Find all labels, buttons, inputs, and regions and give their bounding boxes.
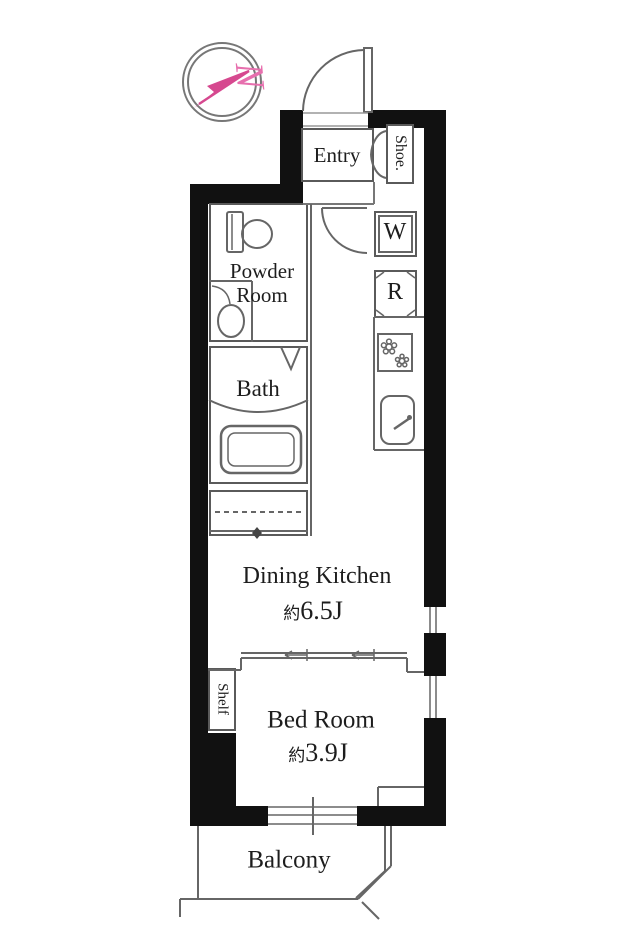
stove-icon — [378, 334, 412, 371]
balcony-label: Balcony — [247, 847, 330, 876]
window-icon-bedroom — [424, 672, 446, 722]
bath-label: Bath — [236, 376, 279, 402]
refrigerator-label: R — [387, 279, 403, 307]
bedroom-notch — [378, 787, 424, 806]
north-arrow-icon: N — [183, 43, 274, 121]
entry-label: Entry — [314, 143, 361, 167]
north-letter: N — [227, 59, 274, 93]
shoe-closet-door-icon — [371, 131, 386, 178]
bathtub-icon — [209, 347, 308, 473]
entry-door-icon — [303, 48, 374, 204]
dining-kitchen-area-prefix: 約 — [283, 604, 300, 623]
shelf-label: Shelf — [213, 683, 230, 715]
bed-room-area-prefix: 約 — [288, 746, 305, 765]
shoe-closet-label: Shoe. — [391, 135, 409, 171]
toilet-icon — [227, 212, 272, 252]
bed-room-label: Bed Room — [267, 707, 375, 736]
washer-label: W — [384, 219, 407, 247]
dining-kitchen-area: 約6.5J — [283, 596, 343, 626]
bed-room-area-value: 3.9J — [305, 738, 348, 767]
hall-door-icon — [322, 208, 367, 253]
powder-room-label: Powder Room — [214, 259, 310, 307]
sliding-partition — [208, 649, 424, 672]
bed-room-area: 約3.9J — [288, 738, 348, 768]
window-icon-dk — [424, 603, 446, 637]
floor-plan: N — [0, 0, 638, 950]
closet-lines — [209, 512, 308, 539]
folding-door-icon — [281, 347, 300, 369]
window-icon-balcony-door — [255, 797, 370, 835]
dining-kitchen-area-value: 6.5J — [300, 596, 343, 625]
sliding-door-arrows — [285, 649, 374, 661]
dining-kitchen-label: Dining Kitchen — [243, 563, 392, 591]
kitchen-sink-icon — [381, 396, 414, 444]
